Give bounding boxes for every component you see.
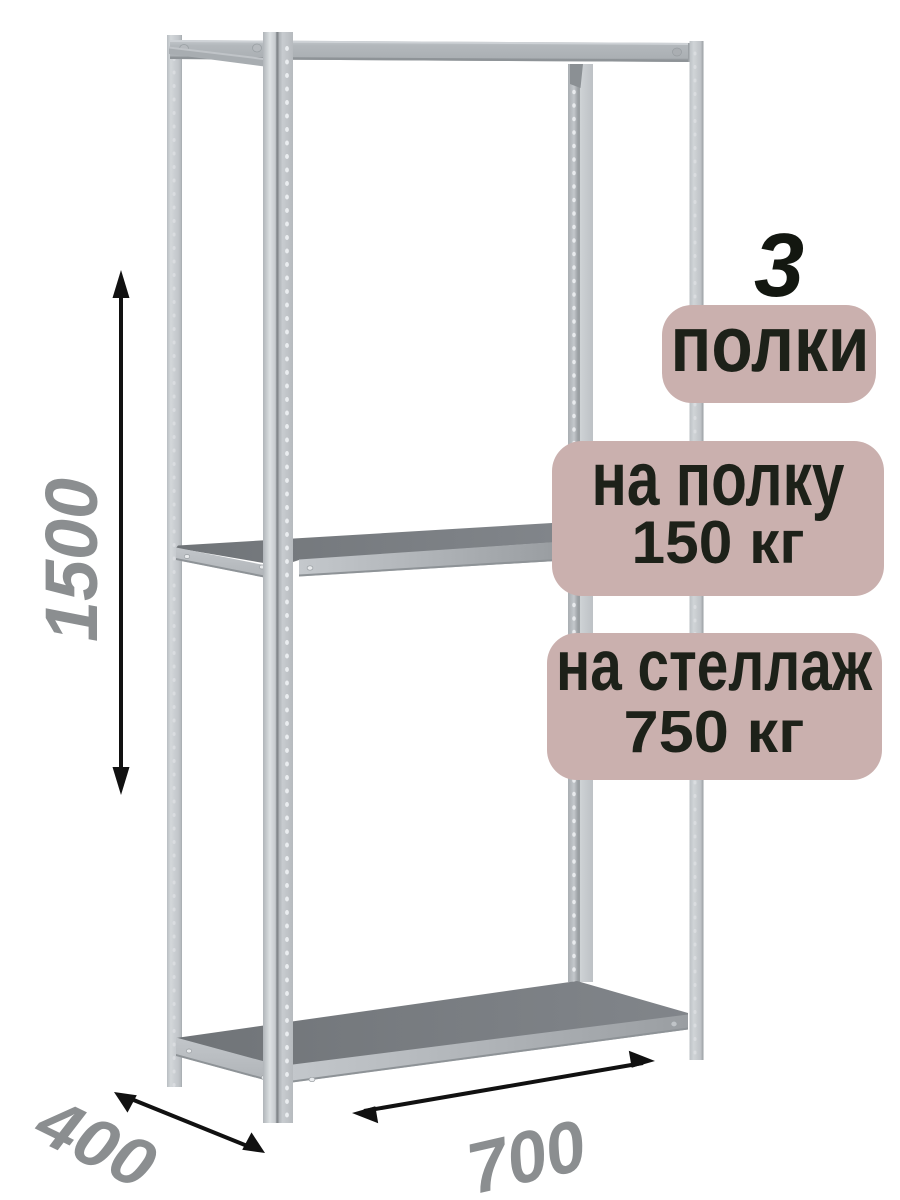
svg-text:750 кг: 750 кг	[624, 699, 805, 765]
svg-text:на стеллаж: на стеллаж	[556, 627, 873, 706]
svg-text:1500: 1500	[30, 478, 113, 642]
svg-text:полки: полки	[671, 299, 870, 388]
svg-text:400: 400	[23, 1082, 167, 1200]
svg-text:700: 700	[460, 1105, 593, 1200]
svg-text:150 кг: 150 кг	[632, 509, 805, 576]
